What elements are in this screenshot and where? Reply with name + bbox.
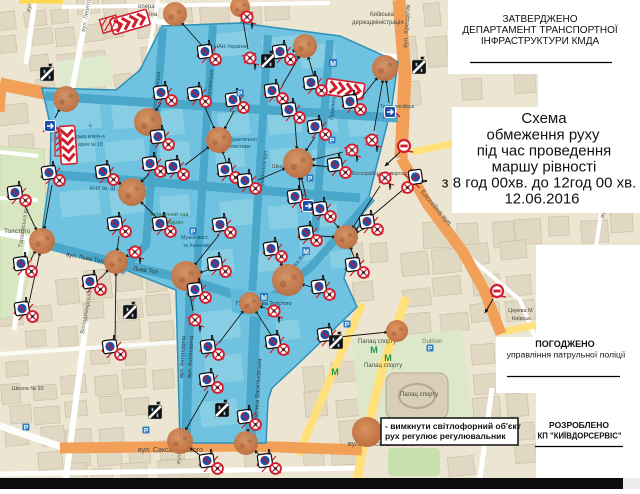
svg-text:Схема: Схема: [521, 110, 567, 127]
svg-text:РОЗРОБЛЕНО: РОЗРОБЛЕНО: [549, 420, 609, 430]
svg-text:Київська: Київська: [370, 12, 395, 18]
svg-text:під час проведення: під час проведення: [477, 143, 612, 160]
svg-text:з 8 год 00хв. до 12год 00 хв.: з 8 год 00хв. до 12год 00 хв.: [442, 175, 637, 192]
svg-text:Школа № 92: Школа № 92: [12, 386, 44, 392]
svg-text:маршу рівності: маршу рівності: [492, 159, 597, 176]
svg-text:КП "КИЇВДОРСЕРВІС": КП "КИЇВДОРСЕРВІС": [537, 432, 621, 441]
svg-text:ПОГОДЖЕНО: ПОГОДЖЕНО: [535, 339, 594, 349]
svg-text:ІНФРАСТРУКТУРИ КМДА: ІНФРАСТРУКТУРИ КМДА: [481, 36, 600, 47]
svg-text:Київськ: Київськ: [512, 316, 531, 322]
svg-text:Церква М: Церква М: [508, 308, 533, 314]
svg-text:ЗАТВЕРДЖЕНО: ЗАТВЕРДЖЕНО: [502, 14, 577, 25]
svg-text:ська клініч-я: ська клініч-я: [76, 134, 105, 140]
svg-text:Gulliver: Gulliver: [422, 339, 442, 345]
svg-text:управління патрульної поліції: управління патрульної поліції: [507, 350, 626, 360]
svg-text:та Ханенків: та Ханенків: [183, 243, 210, 249]
svg-text:опера: опера: [138, 4, 155, 10]
svg-text:12.06.2016: 12.06.2016: [504, 191, 579, 208]
svg-text:Толстого: Толстого: [4, 228, 31, 235]
svg-text:ДЕПАРТАМЕНТ ТРАНСПОРТНОЇ: ДЕПАРТАМЕНТ ТРАНСПОРТНОЇ: [462, 24, 618, 36]
svg-text:обмеження руху: обмеження руху: [487, 127, 600, 144]
svg-text:Палац спорту: Палац спорту: [364, 363, 402, 369]
svg-text:вул.: вул.: [176, 452, 183, 464]
svg-text:арня № 18: арня № 18: [78, 142, 103, 148]
svg-text:КНУ ім. Ш: КНУ ім. Ш: [90, 186, 115, 192]
svg-text:- вимкнути світлофорний об'єкт: - вимкнути світлофорний об'єкт: [385, 421, 521, 431]
svg-text:держадміністрація: держадміністрація: [352, 20, 404, 26]
svg-text:рух регулює регулювальник: рух регулює регулювальник: [385, 431, 506, 441]
svg-text:+: +: [88, 121, 93, 130]
svg-text:Палац спорту: Палац спорту: [400, 392, 438, 398]
